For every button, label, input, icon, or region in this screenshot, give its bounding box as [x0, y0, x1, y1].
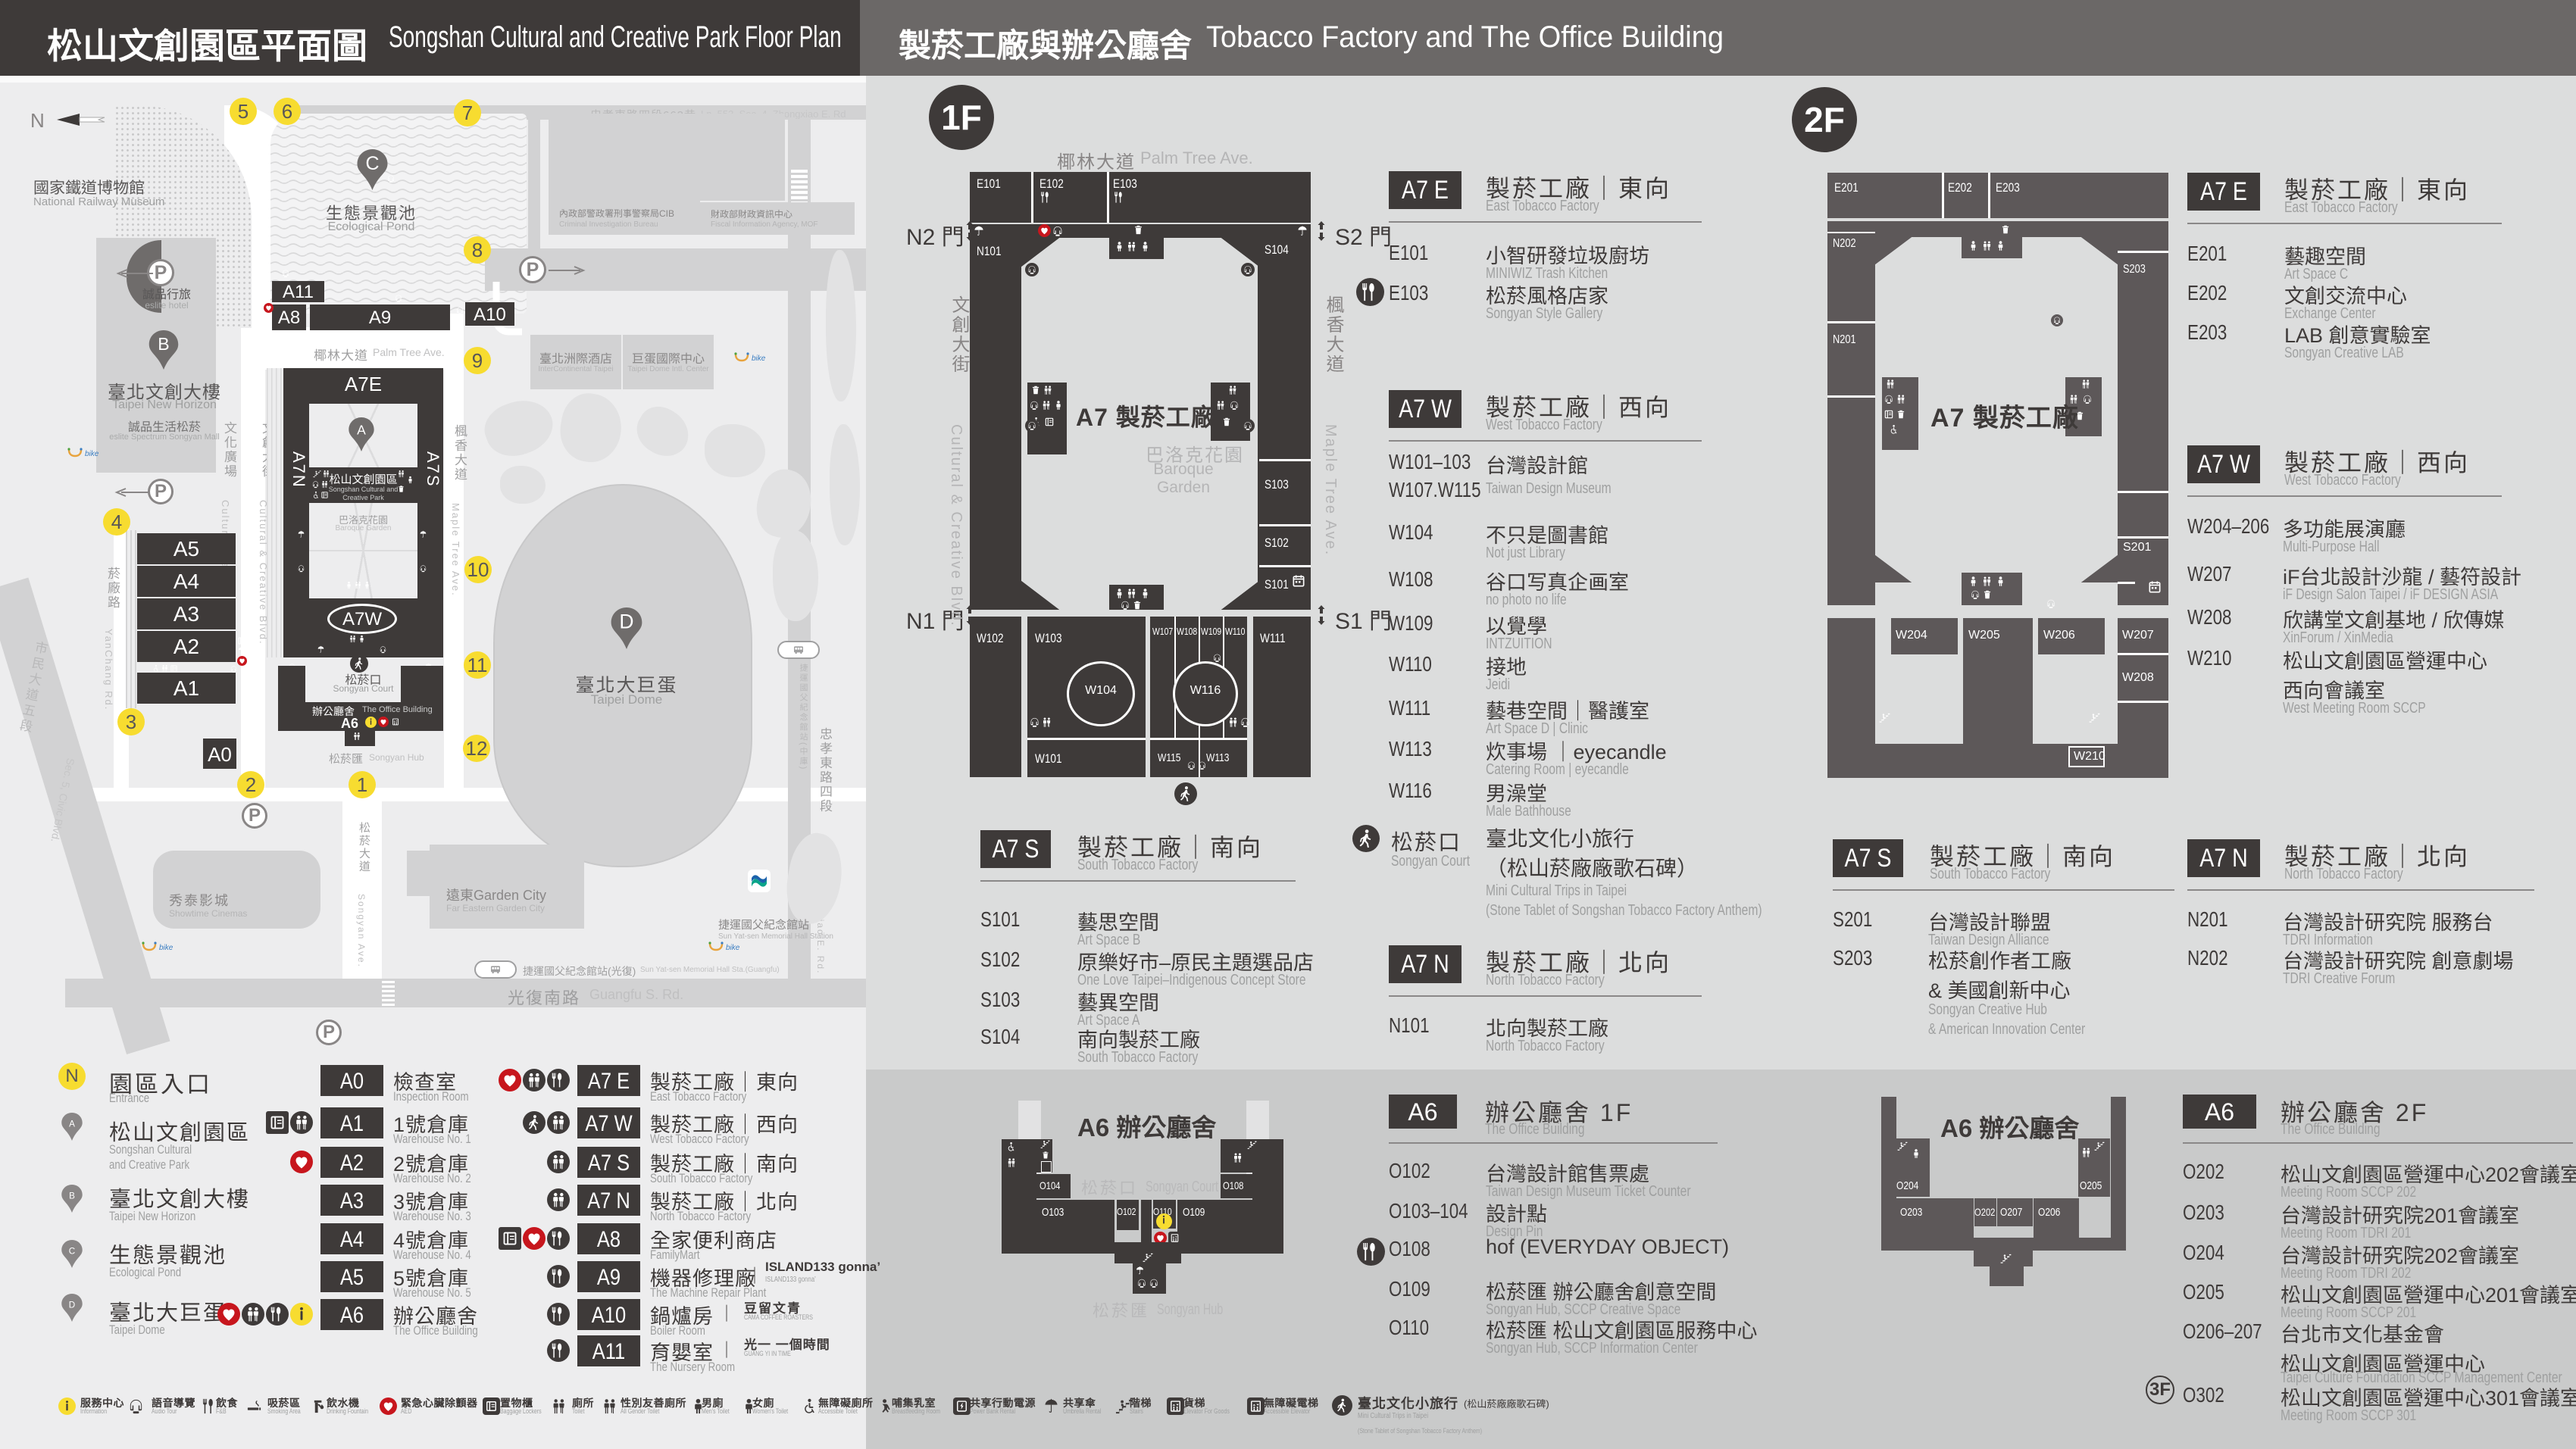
svg-text:C: C — [365, 153, 379, 174]
svg-text:C: C — [69, 1247, 75, 1257]
svg-text:bike: bike — [726, 944, 740, 952]
svg-text:A: A — [357, 423, 366, 438]
svg-text:bike: bike — [85, 450, 99, 458]
svg-text:B: B — [158, 334, 169, 354]
svg-text:bike: bike — [752, 354, 766, 363]
svg-text:bike: bike — [159, 944, 174, 952]
svg-text:D: D — [69, 1301, 75, 1310]
svg-text:D: D — [619, 611, 633, 633]
svg-text:B: B — [69, 1191, 75, 1201]
svg-text:A: A — [69, 1120, 75, 1129]
